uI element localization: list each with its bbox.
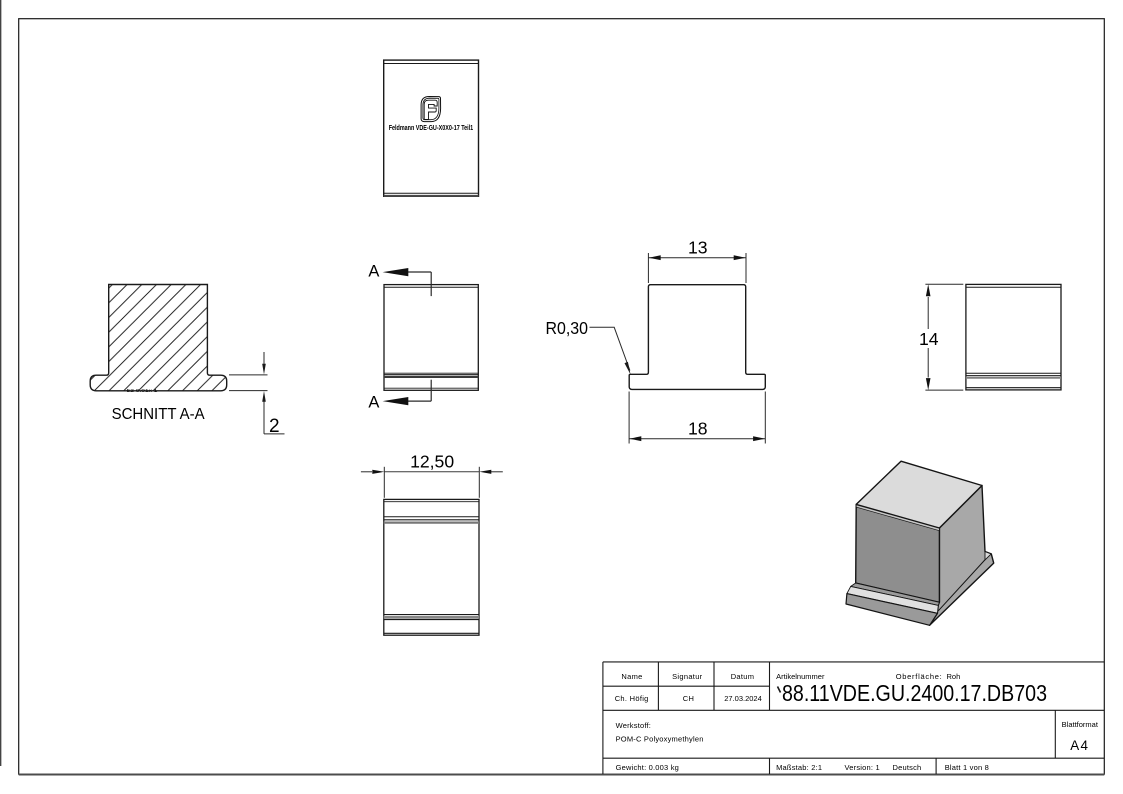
svg-text:Werkstoff:: Werkstoff: <box>616 721 651 730</box>
svg-text:Version: 1: Version: 1 <box>845 763 880 772</box>
svg-text:Blatt 1 von 8: Blatt 1 von 8 <box>945 763 989 772</box>
svg-text:12,50: 12,50 <box>410 452 454 472</box>
svg-text:Maßstab: 2:1: Maßstab: 2:1 <box>776 763 822 772</box>
svg-text:Name: Name <box>621 672 642 681</box>
svg-text:Gewicht: 0.003 kg: Gewicht: 0.003 kg <box>616 763 679 772</box>
svg-text:Signatur: Signatur <box>672 672 703 681</box>
svg-text:18: 18 <box>688 419 708 439</box>
svg-text:88.11VDE.GU.2400.17.DB703: 88.11VDE.GU.2400.17.DB703 <box>782 680 1047 706</box>
svg-text:2: 2 <box>269 416 280 437</box>
svg-text:13: 13 <box>688 238 708 258</box>
svg-text:Feldmann VDE-GU-X0X0-17 Teil1: Feldmann VDE-GU-X0X0-17 Teil1 <box>389 125 474 132</box>
svg-text:Blattformat: Blattformat <box>1062 720 1099 729</box>
svg-text:CH: CH <box>683 694 694 703</box>
svg-text:14: 14 <box>919 329 939 349</box>
svg-text:Datum: Datum <box>731 672 755 681</box>
svg-text:27.03.2024: 27.03.2024 <box>724 694 762 703</box>
svg-text:52 0.01x 1: 52 0.01x 1 <box>127 388 158 394</box>
svg-text:A: A <box>368 393 379 411</box>
svg-text:POM-C Polyoxymethylen: POM-C Polyoxymethylen <box>616 735 704 744</box>
svg-text:A4: A4 <box>1070 738 1089 753</box>
svg-text:Deutsch: Deutsch <box>893 763 922 772</box>
svg-text:Ch. Höfig: Ch. Höfig <box>615 694 649 703</box>
svg-text:A: A <box>368 263 379 281</box>
svg-text:R0,30: R0,30 <box>546 318 589 338</box>
svg-text:SCHNITT A-A: SCHNITT A-A <box>112 406 206 423</box>
